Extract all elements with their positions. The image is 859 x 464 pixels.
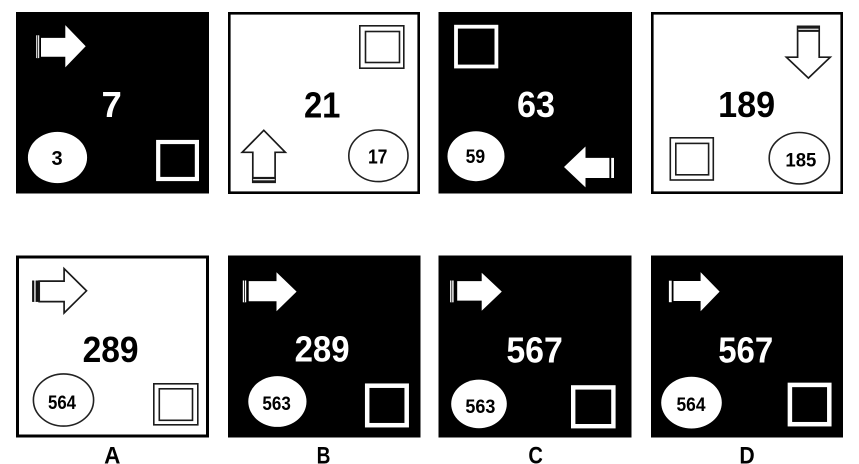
svg-text:563: 563: [262, 393, 291, 415]
svg-text:289: 289: [295, 329, 350, 370]
svg-text:17: 17: [368, 147, 388, 169]
svg-text:189: 189: [718, 84, 775, 125]
svg-text:A: A: [104, 442, 120, 464]
svg-text:63: 63: [517, 84, 555, 125]
svg-text:289: 289: [83, 329, 139, 370]
svg-text:7: 7: [102, 84, 122, 125]
svg-text:D: D: [739, 442, 754, 464]
svg-text:567: 567: [506, 330, 563, 371]
svg-text:564: 564: [677, 394, 706, 416]
svg-text:B: B: [317, 442, 331, 464]
svg-text:564: 564: [48, 392, 76, 414]
svg-text:185: 185: [785, 149, 816, 171]
svg-text:567: 567: [718, 330, 773, 371]
svg-text:C: C: [528, 442, 543, 464]
svg-text:21: 21: [304, 85, 341, 126]
svg-text:3: 3: [51, 148, 62, 170]
svg-text:563: 563: [465, 396, 495, 418]
svg-text:59: 59: [466, 146, 486, 168]
